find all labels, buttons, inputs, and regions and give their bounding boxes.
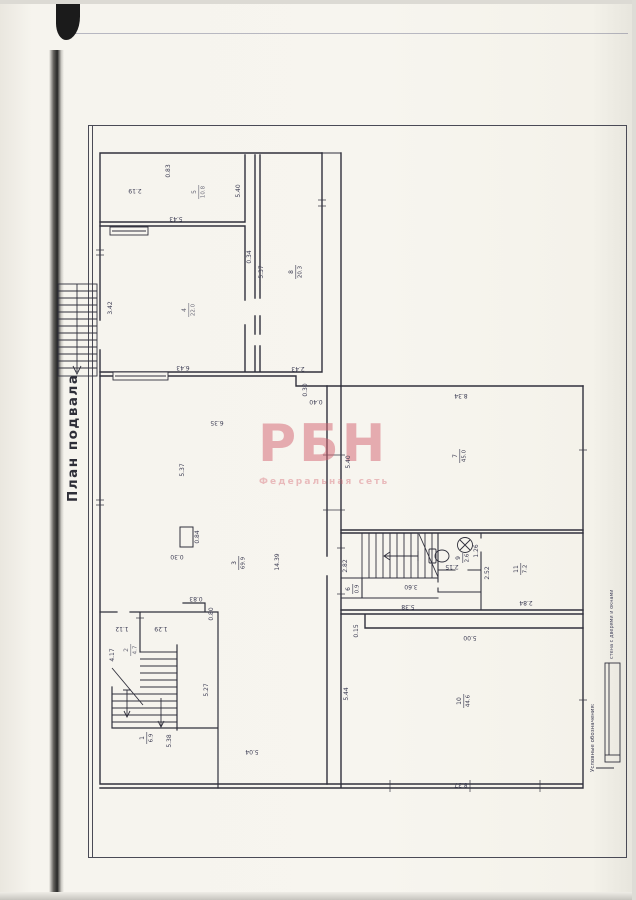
dim-label: 2.43 bbox=[291, 365, 305, 372]
room-label-11: 11 7.2 bbox=[513, 563, 529, 575]
dim-label: 5.27 bbox=[203, 683, 210, 697]
dim-label: 2.82 bbox=[342, 559, 349, 573]
room-area: 2.6 bbox=[465, 553, 471, 562]
room-label-2: 2 4.7 bbox=[123, 644, 139, 656]
stair-break-line bbox=[112, 668, 143, 705]
stair-direction-arrow bbox=[73, 284, 81, 374]
dim-label: 1.26 bbox=[473, 544, 480, 558]
room-number: 3 bbox=[231, 561, 238, 565]
strip-staircase bbox=[362, 533, 438, 578]
dim-label: 6.35 bbox=[210, 419, 224, 426]
room-area: 4.7 bbox=[133, 645, 139, 654]
watermark: РБН Федеральная сеть bbox=[258, 414, 389, 487]
room-label-5: 5 10.8 bbox=[191, 185, 207, 199]
toilet-icon bbox=[435, 550, 449, 562]
dim-label: 0.40 bbox=[309, 398, 323, 405]
dim-label: 5.04 bbox=[245, 748, 259, 755]
dim-label: 2.84 bbox=[519, 599, 533, 606]
room-label-1: 1 6.9 bbox=[139, 732, 155, 744]
room-label-10: 10 44.6 bbox=[456, 694, 472, 708]
dim-label: 8.37 bbox=[454, 781, 468, 788]
dim-label: 5.44 bbox=[343, 687, 350, 701]
legend: Условные обозначения: стена с дверями и … bbox=[590, 589, 620, 772]
column bbox=[180, 527, 193, 547]
stair-treads bbox=[369, 533, 432, 578]
dim-label: 2.52 bbox=[484, 566, 491, 580]
dim-label: 0.80 bbox=[208, 607, 215, 621]
room-number: 2 bbox=[123, 648, 130, 652]
room-area: 7.2 bbox=[523, 565, 529, 574]
room-label-7: 7 45.0 bbox=[452, 449, 468, 463]
stair-direction-arrow bbox=[384, 551, 418, 561]
dim-label: 0.15 bbox=[353, 624, 360, 638]
dim-label: 5.38 bbox=[166, 734, 173, 748]
room-area: 20.3 bbox=[298, 265, 304, 278]
room-label-3: 3 69.9 bbox=[231, 556, 247, 570]
stair-outline bbox=[362, 533, 438, 578]
room-area: 69.9 bbox=[241, 556, 247, 569]
dim-label: 5.40 bbox=[235, 184, 242, 198]
floor-plan-drawing: План подвала bbox=[0, 0, 636, 900]
photo-edge-right bbox=[632, 0, 636, 900]
dim-label: 5.00 bbox=[463, 634, 477, 641]
stair-treads bbox=[58, 291, 97, 368]
room-area: 45.0 bbox=[462, 449, 468, 462]
room-number: 10 bbox=[456, 697, 463, 705]
room-label-4: 4 22.0 bbox=[181, 303, 197, 317]
room-number: 5 bbox=[191, 190, 198, 194]
legend-wall-bar bbox=[605, 663, 620, 762]
dim-label: 8.34 bbox=[454, 392, 468, 399]
dim-label: 5.37 bbox=[179, 463, 186, 477]
dim-label: 14.39 bbox=[274, 553, 281, 570]
room-number: 11 bbox=[513, 565, 520, 573]
room-number: 9 bbox=[455, 556, 462, 560]
room-number: 7 bbox=[452, 454, 459, 458]
dim-label: 5.43 bbox=[169, 215, 183, 222]
room-label-6: 6 0.9 bbox=[345, 584, 361, 594]
dim-label: 2.15 bbox=[445, 563, 459, 570]
room-area: 0.9 bbox=[355, 584, 361, 593]
exterior-staircase bbox=[58, 284, 97, 376]
room-number: 1 bbox=[139, 736, 146, 740]
room-area: 22.0 bbox=[191, 303, 197, 316]
dim-label: 1.12 bbox=[115, 625, 129, 632]
dim-label: 5.37 bbox=[258, 265, 265, 279]
room-label-8: 8 20.3 bbox=[288, 265, 304, 279]
sheet-title: План подвала bbox=[65, 374, 81, 502]
dim-label: 5.38 bbox=[401, 603, 415, 610]
legend-wall-symbol bbox=[596, 663, 620, 768]
room-number: 6 bbox=[345, 587, 352, 591]
stair-treads bbox=[112, 652, 177, 722]
dim-label: 6.43 bbox=[176, 364, 190, 371]
watermark-brand: РБН bbox=[258, 414, 388, 474]
dim-label: 0.30 bbox=[170, 553, 184, 560]
photo-edge-top bbox=[0, 0, 636, 4]
room-number: 8 bbox=[288, 270, 295, 274]
room-label-9: 9 2.6 bbox=[455, 553, 471, 563]
lower-staircase bbox=[112, 652, 177, 727]
dim-label: 5.40 bbox=[345, 455, 352, 469]
watermark-subtitle: Федеральная сеть bbox=[259, 477, 389, 487]
dim-label: 4.17 bbox=[109, 648, 116, 662]
room-area: 6.9 bbox=[149, 733, 155, 742]
washbasin-cross bbox=[460, 540, 470, 550]
dim-label: 2.19 bbox=[128, 187, 142, 194]
dim-label: 0.84 bbox=[194, 530, 201, 544]
photo-edge-bottom bbox=[0, 892, 636, 900]
window-symbols bbox=[110, 227, 168, 380]
dim-label: 1.29 bbox=[154, 625, 168, 632]
dim-label: 0.30 bbox=[302, 383, 309, 397]
room-area: 10.8 bbox=[201, 185, 207, 198]
dim-label: 3.42 bbox=[107, 301, 114, 315]
scanned-sheet: План подвала bbox=[0, 0, 636, 900]
dim-label: 0.83 bbox=[165, 164, 172, 178]
dim-label: 0.34 bbox=[246, 250, 253, 264]
dim-label: 0.83 bbox=[189, 595, 203, 602]
stair-direction-arrow bbox=[158, 698, 164, 727]
dim-label: 3.60 bbox=[404, 583, 418, 590]
room-area: 44.6 bbox=[466, 694, 472, 707]
room-number: 4 bbox=[181, 308, 188, 312]
legend-title: Условные обозначения: bbox=[590, 703, 596, 772]
legend-wall-caption: стена с дверями и окнами bbox=[609, 589, 615, 659]
